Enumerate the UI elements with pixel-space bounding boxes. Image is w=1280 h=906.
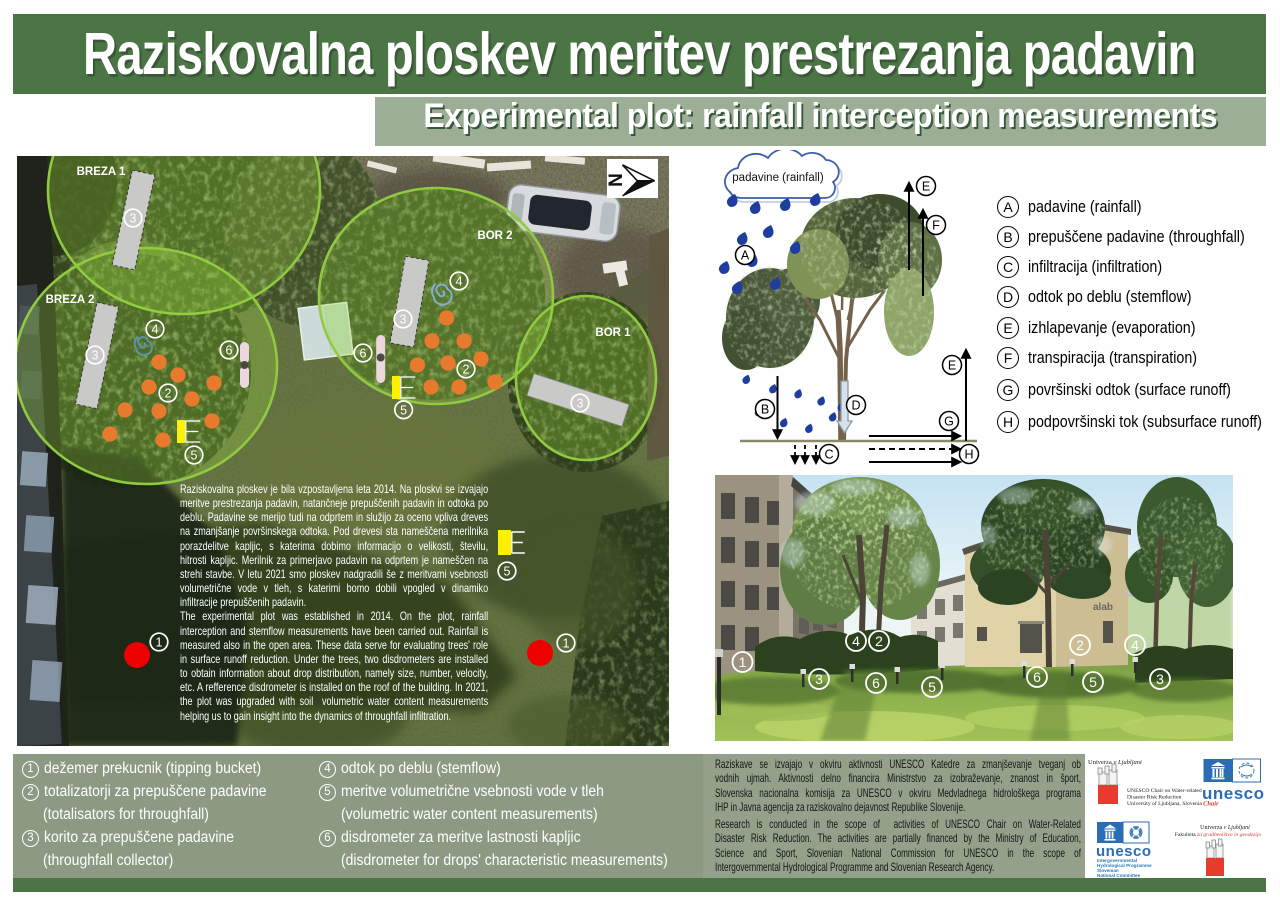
svg-text:3: 3 [92,349,99,363]
svg-text:C: C [824,448,833,462]
svg-text:4: 4 [152,323,159,337]
svg-text:E: E [922,180,930,194]
svg-text:6: 6 [872,675,880,691]
svg-text:5: 5 [928,679,936,695]
svg-text:3: 3 [1156,671,1164,687]
svg-text:1: 1 [156,636,163,650]
svg-text:Univerza v Ljubljani: Univerza v Ljubljani [1200,825,1250,831]
svg-text:5: 5 [191,449,198,463]
svg-text:3: 3 [400,313,407,327]
svg-text:2: 2 [463,363,470,377]
svg-text:G: G [944,415,954,429]
svg-text:6: 6 [226,344,233,358]
svg-text:2: 2 [1076,637,1084,653]
svg-text:National Committee: National Committee [1097,873,1141,878]
svg-text:4: 4 [456,275,463,289]
svg-text:4: 4 [852,633,860,649]
svg-text:F: F [932,219,940,233]
svg-text:3: 3 [130,212,137,226]
svg-text:BREZA 1: BREZA 1 [77,166,126,178]
svg-text:5: 5 [504,565,511,579]
svg-text:Disaster Risk Reduction: Disaster Risk Reduction [1127,795,1182,801]
svg-text:BREZA 2: BREZA 2 [46,294,95,306]
svg-text:D: D [851,399,860,413]
svg-text:6: 6 [360,347,367,361]
svg-text:Fakulteta za gradbeništvo in g: Fakulteta za gradbeništvo in geodezijo [1175,832,1262,838]
svg-text:BOR 2: BOR 2 [477,230,512,242]
svg-text:2: 2 [165,387,172,401]
svg-text:A: A [741,249,750,263]
svg-text:padavine (rainfall): padavine (rainfall) [732,172,824,184]
svg-text:6: 6 [1033,669,1041,685]
svg-text:H: H [964,448,973,462]
svg-text:2: 2 [875,633,883,649]
svg-text:N: N [606,173,627,187]
svg-text:5: 5 [1089,674,1097,690]
svg-text:University of Ljubljana, Slove: University of Ljubljana, Slovenia [1127,800,1202,807]
svg-text:1: 1 [563,637,570,651]
svg-text:Chair: Chair [1203,801,1219,808]
svg-text:3: 3 [577,397,584,411]
svg-text:B: B [761,403,769,417]
svg-text:UNESCO Chair on Water-related: UNESCO Chair on Water-related [1127,788,1202,794]
svg-text:alab: alab [1093,602,1113,613]
svg-text:3: 3 [815,671,823,687]
svg-text:E: E [948,359,956,373]
svg-text:4: 4 [1131,637,1139,653]
svg-text:5: 5 [400,403,407,417]
svg-text:BOR 1: BOR 1 [595,327,631,339]
svg-text:1: 1 [739,654,747,670]
